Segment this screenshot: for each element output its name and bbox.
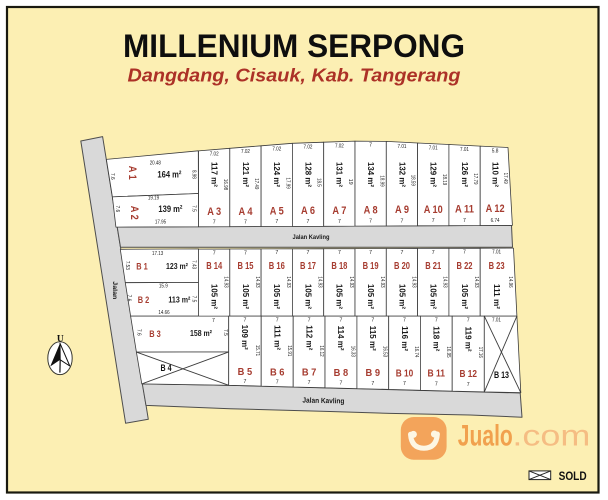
svg-text:7: 7 [307,219,310,225]
svg-text:7.01: 7.01 [492,317,501,323]
svg-text:B 23: B 23 [489,260,505,272]
svg-text:129 m²: 129 m² [429,162,438,187]
svg-text:7: 7 [243,379,246,385]
svg-text:B 9: B 9 [366,367,381,379]
svg-text:B 7: B 7 [302,367,317,379]
svg-text:7.02: 7.02 [272,146,281,152]
svg-text:B 3: B 3 [149,329,161,339]
svg-text:7.01: 7.01 [492,250,501,256]
svg-text:14.93: 14.93 [442,276,448,287]
svg-text:14.93: 14.93 [348,276,354,287]
svg-text:7: 7 [463,218,466,224]
svg-text:7: 7 [432,250,435,256]
svg-text:7.5: 7.5 [191,296,197,303]
svg-text:B 16: B 16 [269,260,285,272]
svg-text:B 5: B 5 [238,366,253,378]
svg-text:Jalan Kavling: Jalan Kavling [302,396,345,406]
svg-text:7.5: 7.5 [222,329,228,336]
svg-text:15.71: 15.71 [254,345,260,356]
svg-text:A 10: A 10 [424,204,443,216]
svg-text:B 21: B 21 [425,260,441,272]
svg-text:MILLENIUM SERPONG: MILLENIUM SERPONG [123,28,465,64]
svg-text:7: 7 [307,250,310,256]
svg-text:19: 19 [347,179,353,185]
svg-text:20.48: 20.48 [150,161,161,167]
svg-text:8.98: 8.98 [190,170,196,179]
svg-text:Dangdang, Cisauk, Kab. Tangera: Dangdang, Cisauk, Kab. Tangerang [128,65,461,86]
svg-text:109 m²: 109 m² [240,325,249,350]
svg-text:B 12: B 12 [459,368,477,380]
svg-text:Jalan: Jalan [111,281,118,299]
svg-text:117 m²: 117 m² [210,162,219,187]
svg-text:7: 7 [403,381,406,387]
svg-text:16.74: 16.74 [413,346,419,357]
svg-text:14.93: 14.93 [254,276,260,287]
svg-text:113 m²: 113 m² [168,295,190,305]
svg-text:105 m²: 105 m² [366,284,375,309]
svg-text:128 m²: 128 m² [303,162,312,187]
svg-text:110 m²: 110 m² [490,162,499,187]
svg-text:14.93: 14.93 [379,276,385,287]
svg-text:7.01: 7.01 [398,144,407,150]
svg-text:116 m²: 116 m² [400,326,409,351]
svg-text:15.9: 15.9 [159,284,168,290]
svg-text:B 1: B 1 [136,261,148,271]
svg-text:7: 7 [276,317,279,323]
svg-text:14.93: 14.93 [317,276,323,287]
svg-text:7.02: 7.02 [210,151,219,157]
svg-text:7.6: 7.6 [136,329,142,336]
svg-text:16.33: 16.33 [350,346,356,357]
svg-text:7: 7 [371,317,374,323]
svg-text:7: 7 [369,143,372,149]
svg-text:B 22: B 22 [457,260,473,272]
svg-text:7: 7 [467,317,470,323]
svg-text:18.5: 18.5 [316,178,322,187]
svg-text:A 9: A 9 [395,204,409,216]
svg-text:A 8: A 8 [364,205,378,217]
svg-text:16.95: 16.95 [445,346,451,357]
svg-text:17.95: 17.95 [155,220,166,226]
svg-text:7: 7 [308,317,311,323]
svg-text:105 m²: 105 m² [429,284,438,309]
svg-text:7: 7 [371,381,374,387]
svg-text:134 m²: 134 m² [366,162,375,187]
svg-text:164 m²: 164 m² [157,170,181,180]
svg-text:18.59: 18.59 [410,175,416,186]
svg-text:7: 7 [369,219,372,225]
svg-text:7: 7 [275,250,278,256]
svg-text:124 m²: 124 m² [272,162,281,187]
svg-text:14.93: 14.93 [223,276,229,287]
svg-text:114 m²: 114 m² [336,326,345,351]
svg-text:121 m²: 121 m² [241,162,250,187]
svg-text:105 m²: 105 m² [272,284,281,309]
svg-text:A 6: A 6 [301,205,315,217]
svg-text:7.01: 7.01 [460,147,469,153]
svg-text:7: 7 [338,250,341,256]
svg-text:B 17: B 17 [300,260,316,272]
svg-text:17.13: 17.13 [152,251,163,257]
svg-text:112 m²: 112 m² [304,325,313,350]
svg-text:105 m²: 105 m² [460,284,469,309]
svg-text:B 13: B 13 [494,370,509,380]
svg-text:139 m²: 139 m² [158,204,182,214]
svg-text:7: 7 [403,317,406,323]
svg-text:7: 7 [212,318,215,324]
svg-text:6.74: 6.74 [491,218,500,224]
svg-text:115 m²: 115 m² [368,326,377,351]
svg-text:A 4: A 4 [239,206,254,218]
svg-text:17.49: 17.49 [253,178,259,189]
svg-text:158 m²: 158 m² [190,328,212,338]
svg-text:105 m²: 105 m² [241,284,250,309]
svg-text:17.16: 17.16 [477,347,483,358]
svg-text:B 18: B 18 [331,260,347,272]
svg-text:B 20: B 20 [394,260,410,272]
svg-text:7: 7 [435,382,438,388]
svg-text:7: 7 [339,380,342,386]
svg-text:7.5: 7.5 [190,205,196,212]
svg-text:7.6: 7.6 [109,173,115,180]
svg-text:A 12: A 12 [486,203,505,215]
svg-text:111 m²: 111 m² [273,325,282,350]
svg-text:131 m²: 131 m² [335,162,344,187]
svg-text:A 7: A 7 [332,205,346,217]
svg-text:B 10: B 10 [396,367,414,379]
svg-text:A 1: A 1 [126,166,138,180]
svg-text:7: 7 [213,220,216,226]
svg-text:16.12: 16.12 [318,345,324,356]
svg-text:7.43: 7.43 [191,260,197,269]
svg-text:7: 7 [467,382,470,388]
svg-text:B 14: B 14 [206,260,222,272]
svg-text:.com: .com [512,420,590,453]
svg-text:B 4: B 4 [161,363,172,373]
svg-text:Jalan Kavling: Jalan Kavling [293,234,330,241]
svg-text:7: 7 [401,218,404,224]
svg-text:7.6: 7.6 [126,295,132,302]
svg-text:B 2: B 2 [138,295,150,305]
svg-text:7.6: 7.6 [114,205,120,212]
svg-text:14.93: 14.93 [410,276,416,287]
svg-text:105 m²: 105 m² [210,284,219,309]
svg-text:B 6: B 6 [270,366,285,378]
svg-text:7.53: 7.53 [124,261,130,270]
svg-text:105 m²: 105 m² [397,284,406,309]
svg-text:16.53: 16.53 [382,346,388,357]
svg-text:119 m²: 119 m² [464,327,473,352]
svg-text:7: 7 [435,317,438,323]
svg-text:17.79: 17.79 [472,173,478,184]
svg-text:B 19: B 19 [363,260,379,272]
svg-text:A 5: A 5 [270,206,284,218]
svg-text:7.02: 7.02 [335,144,344,150]
svg-text:126 m²: 126 m² [460,162,469,187]
svg-text:14.66: 14.66 [158,310,169,316]
svg-text:14.93: 14.93 [473,276,479,287]
svg-text:132 m²: 132 m² [397,162,406,187]
svg-text:B 11: B 11 [428,368,446,380]
svg-text:123 m²: 123 m² [166,261,188,271]
svg-text:18.99: 18.99 [378,175,384,186]
svg-text:7: 7 [243,317,246,323]
svg-text:7.01: 7.01 [429,146,438,152]
svg-text:7: 7 [244,250,247,256]
svg-text:14.93: 14.93 [285,276,291,287]
svg-text:118 m²: 118 m² [432,326,441,351]
svg-text:105 m²: 105 m² [335,284,344,309]
svg-text:7: 7 [308,380,311,386]
svg-text:7: 7 [213,250,216,256]
svg-text:19.19: 19.19 [148,196,159,202]
svg-text:7: 7 [339,317,342,323]
svg-text:7: 7 [463,250,466,256]
svg-text:Jualo: Jualo [458,420,513,453]
svg-text:18.19: 18.19 [441,174,447,185]
svg-text:7: 7 [369,250,372,256]
svg-text:7: 7 [401,250,404,256]
svg-text:7.02: 7.02 [241,149,250,155]
svg-text:5.8: 5.8 [492,149,499,155]
svg-text:17.49: 17.49 [502,173,508,184]
svg-text:A 11: A 11 [455,203,474,215]
svg-text:A 3: A 3 [207,206,221,218]
svg-text:15.91: 15.91 [286,345,292,356]
svg-text:B 15: B 15 [238,260,254,272]
svg-text:105 m²: 105 m² [303,284,312,309]
svg-text:SOLD: SOLD [559,470,587,483]
svg-text:B 8: B 8 [334,367,349,379]
svg-text:7: 7 [338,219,341,225]
svg-text:7: 7 [432,218,435,224]
svg-text:7.02: 7.02 [304,145,313,151]
svg-text:A 2: A 2 [128,206,140,220]
svg-text:14.96: 14.96 [507,276,513,287]
svg-text:7: 7 [275,219,278,225]
svg-text:7: 7 [276,380,279,386]
svg-text:16.98: 16.98 [222,179,228,190]
svg-text:111 m²: 111 m² [492,284,501,309]
svg-text:17.99: 17.99 [284,178,290,189]
svg-text:7: 7 [244,219,247,225]
